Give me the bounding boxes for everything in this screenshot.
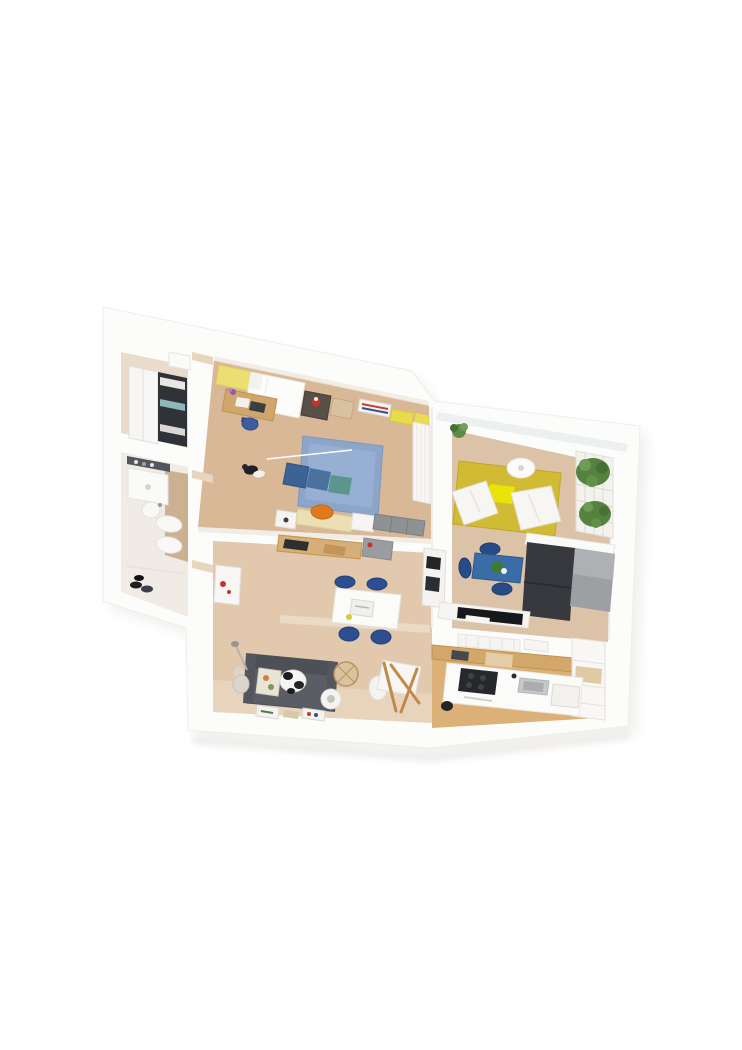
medicine-cabinet: [214, 565, 241, 605]
frame3-red: [307, 712, 311, 716]
burner-1: [468, 673, 474, 679]
entry-shoes-2: [141, 586, 153, 593]
teddy-bear: [233, 675, 249, 693]
island-appliance: [551, 684, 580, 708]
dining-chair-4: [371, 630, 391, 644]
lounge-plant-small-3: [460, 423, 468, 431]
desk-flower-2: [228, 388, 232, 392]
lamp-head: [231, 641, 239, 647]
table-item-yellow: [346, 614, 352, 620]
bedroom-radiator: [413, 422, 431, 504]
island-cooktop: [458, 668, 498, 695]
canvas-smudge-2: [268, 684, 274, 690]
kitchen-stool: [441, 701, 453, 711]
plant1-blob-1: [579, 459, 591, 471]
armchair-hat-dot: [314, 397, 318, 401]
plant2-blob-1: [583, 502, 593, 512]
bookshelf-books-2: [425, 576, 440, 592]
lounge-plant-small-2: [450, 424, 458, 432]
rug-pillow-1: [283, 463, 309, 488]
dining-chair-3: [339, 627, 359, 641]
cow-patch-1: [283, 672, 293, 680]
bookshelf-books-1: [426, 556, 441, 570]
dining-chair-1: [335, 576, 355, 588]
bathroom-sink: [142, 502, 160, 518]
table-printer: [350, 599, 374, 617]
coffee-table-dot: [518, 465, 524, 471]
island-faucet: [512, 674, 517, 679]
cat-head: [242, 464, 248, 470]
bathroom-bottle-2: [142, 462, 146, 466]
speaker-dot: [284, 518, 289, 523]
cow-patch-2: [294, 681, 304, 689]
lounge-chair-3: [480, 543, 500, 555]
dining-chair-2: [367, 578, 387, 590]
bedroom-cabinet-white: [351, 513, 375, 532]
entry-shoes-1: [130, 582, 142, 589]
bathroom-bottle-1: [134, 460, 138, 464]
medicine-red-1: [220, 581, 226, 587]
lounge-table-bird: [501, 568, 507, 574]
rug-pillow-2: [306, 468, 331, 491]
living-cabinet-gray: [362, 538, 393, 560]
floorplan-svg: [0, 0, 742, 1050]
cow-patch-3: [287, 688, 295, 694]
shower-drain: [145, 484, 151, 490]
sofa-canvas: [256, 668, 281, 696]
plant2-blob-3: [591, 518, 601, 528]
sink-faucet: [158, 503, 162, 507]
fan-hub: [327, 695, 335, 703]
plant1-blob-3: [586, 475, 598, 487]
canvas-smudge-1: [263, 675, 269, 681]
medicine-red-2: [227, 590, 231, 594]
floorplan-shapes: [103, 307, 648, 762]
frame3-blue: [314, 713, 318, 717]
plant1-blob-2: [596, 462, 608, 474]
lounge-chair-4: [492, 583, 512, 595]
plant2-blob-2: [599, 506, 609, 516]
rug-cushion-teal: [328, 475, 352, 495]
bathroom-bottle-3: [150, 463, 154, 467]
burner-2: [480, 675, 486, 681]
tv-unit-dark: [522, 542, 575, 621]
floor-plan-page: [0, 0, 742, 1050]
burner-3: [466, 682, 472, 688]
entry-shoes-3: [134, 575, 144, 581]
bedroom-nightstand: [330, 398, 354, 419]
cabinet-red-item: [368, 543, 373, 548]
burner-4: [478, 684, 484, 690]
